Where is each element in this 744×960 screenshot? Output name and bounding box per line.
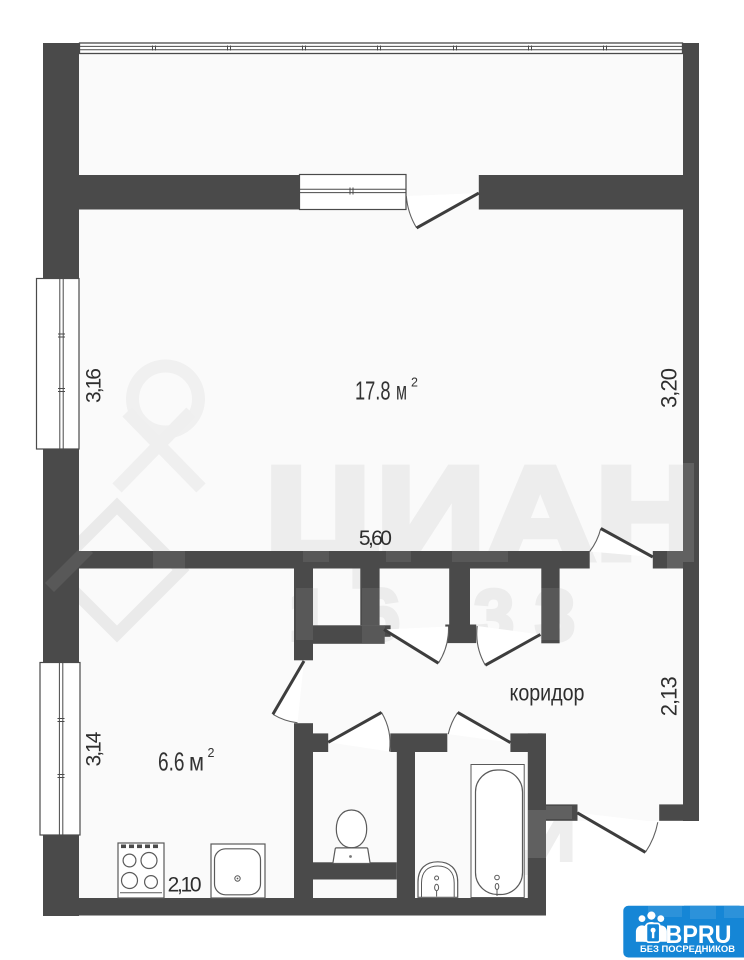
svg-text:5,60: 5,60 (359, 527, 392, 550)
svg-text:2,13: 2,13 (657, 676, 682, 716)
svg-text:м: м (396, 376, 407, 406)
svg-text:6.6: 6.6 (158, 747, 185, 777)
svg-text:3,14: 3,14 (83, 731, 106, 766)
svg-text:БЕЗ ПОСРЕДНИКОВ: БЕЗ ПОСРЕДНИКОВ (640, 944, 736, 954)
svg-text:2: 2 (208, 746, 215, 760)
svg-text:м: м (189, 747, 204, 777)
svg-text:коридор: коридор (510, 680, 585, 706)
svg-text:2: 2 (411, 376, 418, 390)
svg-text:2,10: 2,10 (168, 874, 202, 897)
svg-text:3,20: 3,20 (657, 368, 682, 408)
svg-text:17.8: 17.8 (355, 376, 391, 406)
svg-text:3,16: 3,16 (83, 368, 106, 403)
